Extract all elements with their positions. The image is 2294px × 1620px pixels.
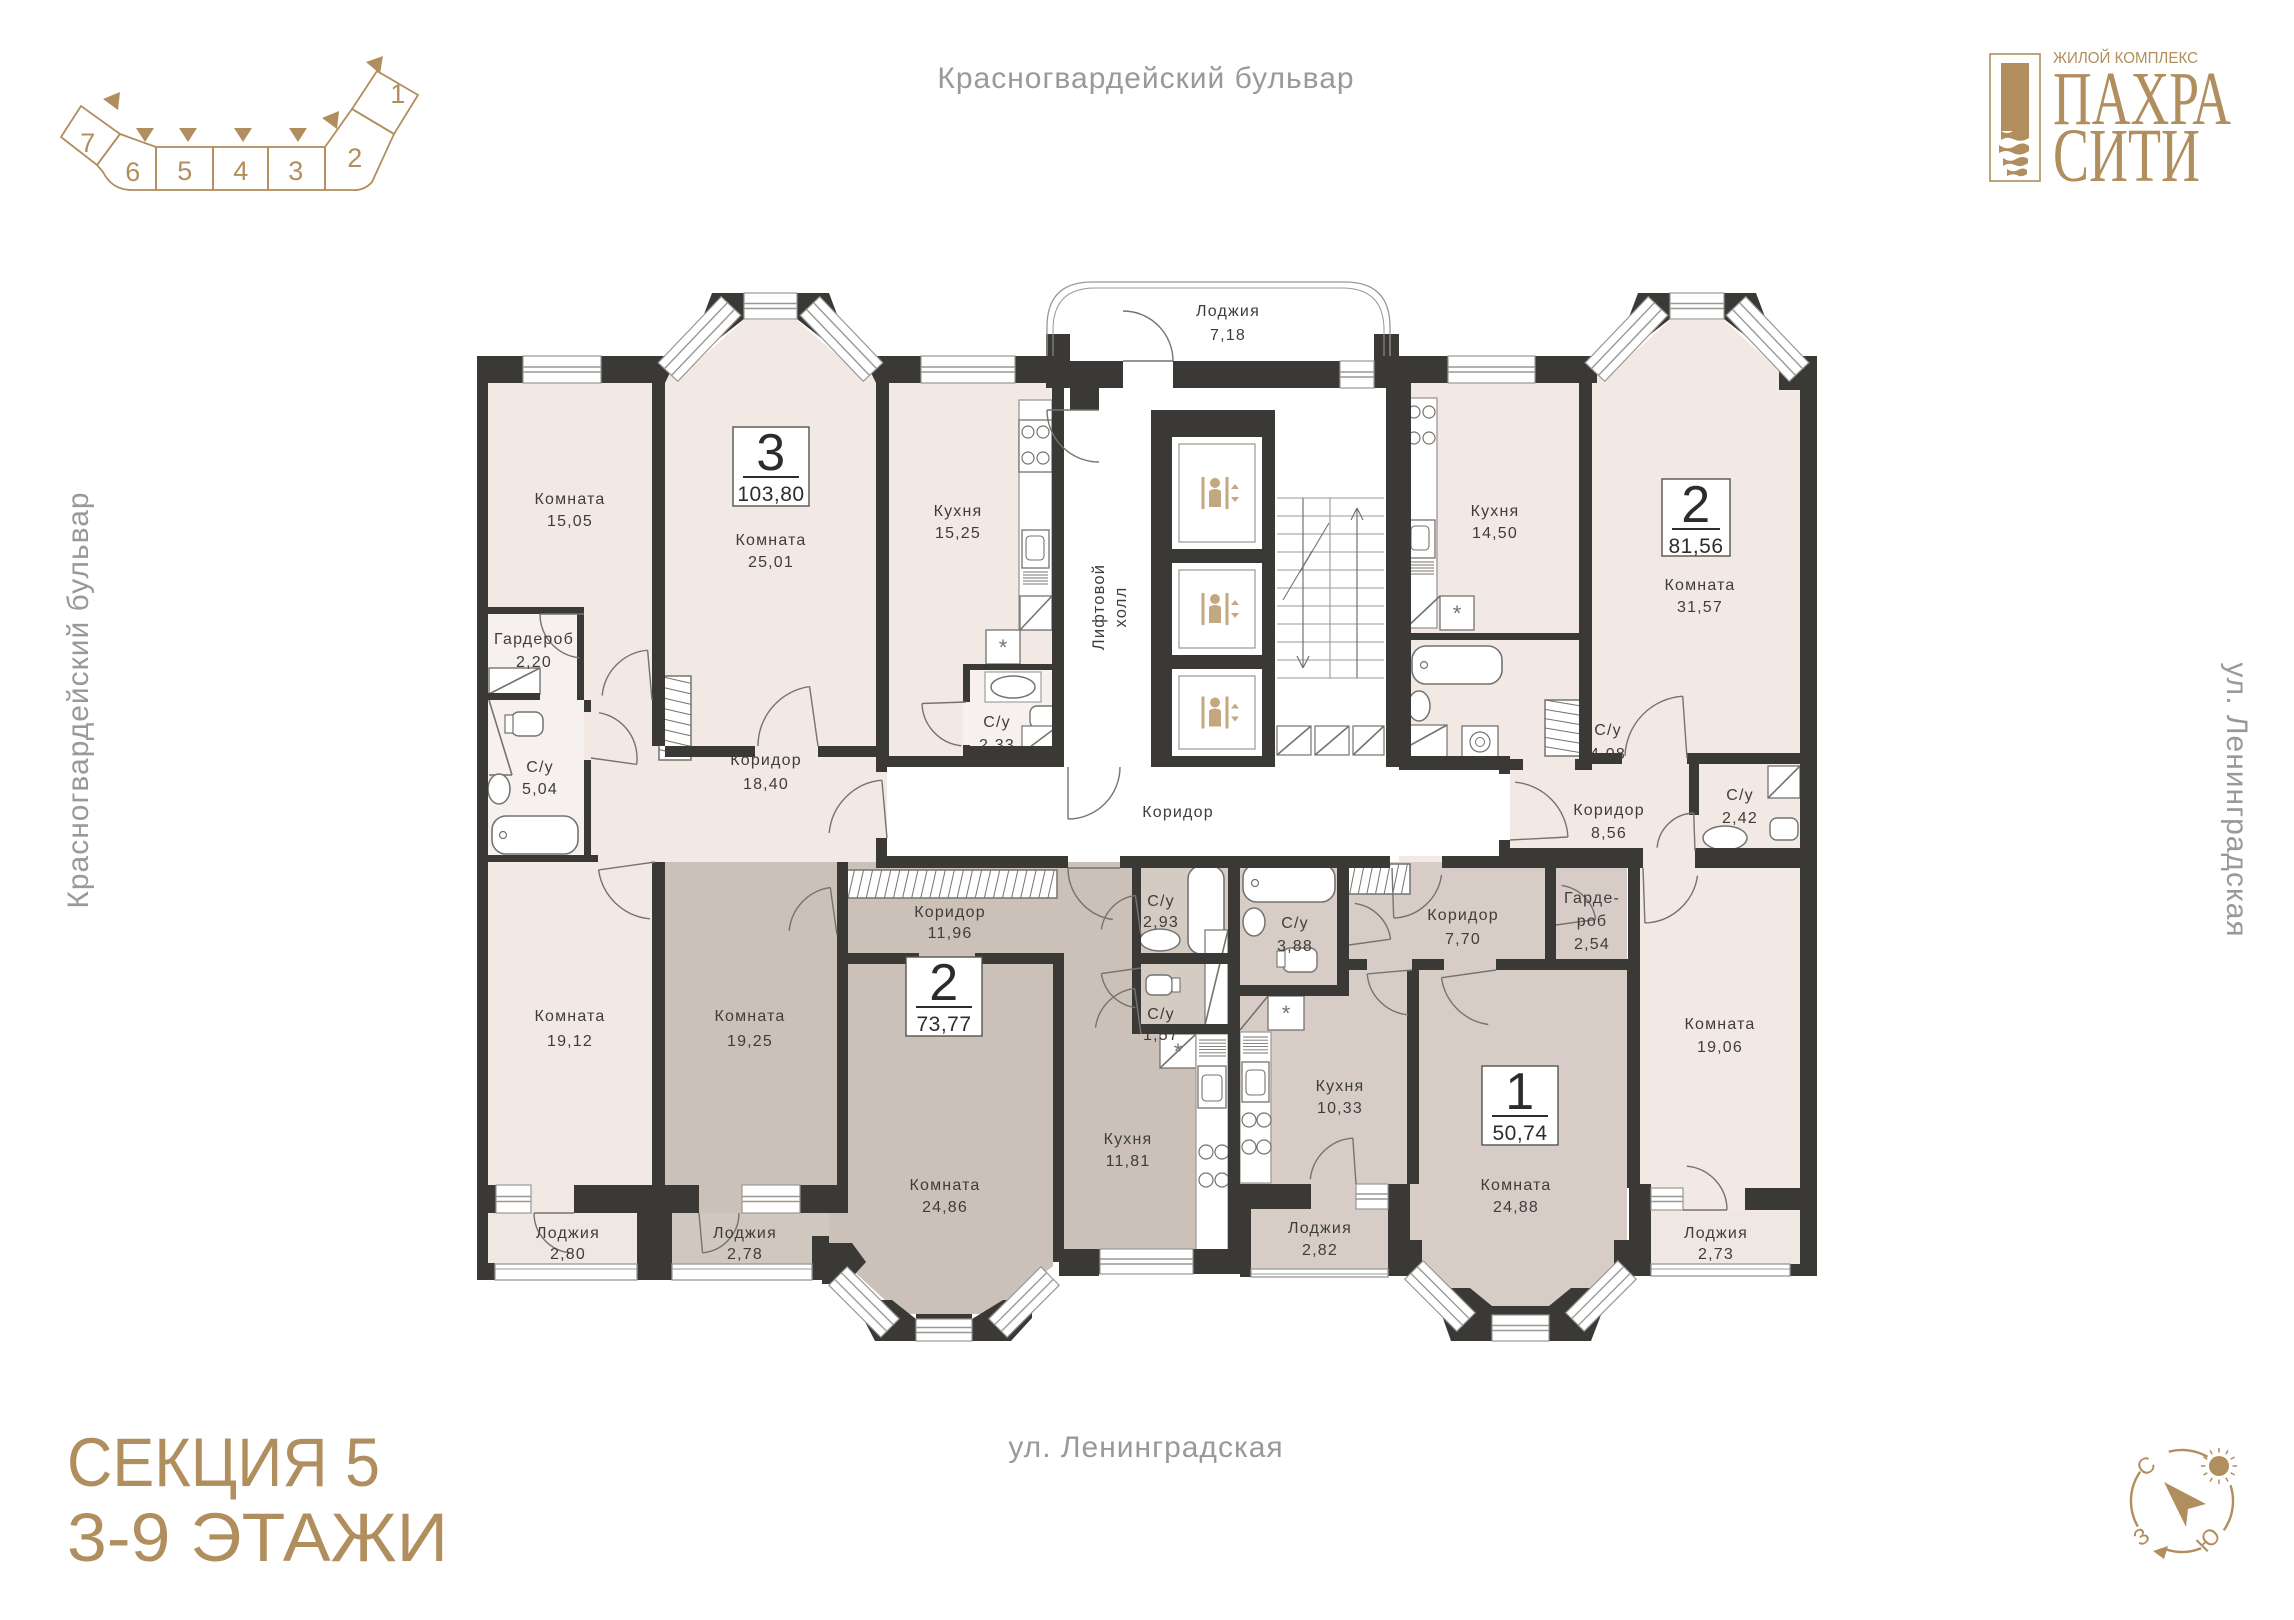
svg-text:103,80: 103,80 bbox=[737, 483, 804, 506]
svg-text:Лоджия: Лоджия bbox=[1196, 303, 1260, 320]
svg-text:14,50: 14,50 bbox=[1472, 525, 1518, 542]
svg-text:Комната: Комната bbox=[1684, 1016, 1755, 1033]
svg-text:С/у: С/у bbox=[1726, 787, 1754, 804]
svg-text:18,40: 18,40 bbox=[743, 776, 789, 793]
svg-text:СЕКЦИЯ 5: СЕКЦИЯ 5 bbox=[67, 1424, 380, 1501]
svg-text:Лифтовой: Лифтовой bbox=[1090, 564, 1108, 650]
svg-text:2,54: 2,54 bbox=[1574, 936, 1610, 953]
svg-text:6: 6 bbox=[125, 157, 141, 187]
svg-text:Комната: Комната bbox=[534, 1008, 605, 1025]
svg-text:роб: роб bbox=[1577, 913, 1608, 930]
svg-text:*: * bbox=[1453, 601, 1462, 626]
svg-text:Коридор: Коридор bbox=[1573, 802, 1645, 819]
svg-text:2,42: 2,42 bbox=[1722, 810, 1758, 827]
svg-text:Комната: Комната bbox=[534, 491, 605, 508]
svg-text:ул. Ленинградская: ул. Ленинградская bbox=[2220, 662, 2253, 937]
svg-text:24,86: 24,86 bbox=[922, 1199, 968, 1216]
svg-text:С/у: С/у bbox=[983, 714, 1011, 731]
svg-text:2,80: 2,80 bbox=[550, 1246, 586, 1263]
svg-text:Красногвардейский бульвар: Красногвардейский бульвар bbox=[937, 62, 1354, 95]
svg-text:10,33: 10,33 bbox=[1317, 1100, 1363, 1117]
svg-text:7: 7 bbox=[80, 128, 96, 158]
svg-text:31,57: 31,57 bbox=[1677, 599, 1723, 616]
svg-text:24,88: 24,88 bbox=[1493, 1199, 1539, 1216]
svg-text:*: * bbox=[1282, 1001, 1291, 1026]
svg-text:19,12: 19,12 bbox=[547, 1033, 593, 1050]
svg-text:Комната: Комната bbox=[714, 1008, 785, 1025]
svg-text:73,77: 73,77 bbox=[916, 1013, 971, 1036]
svg-text:7,18: 7,18 bbox=[1210, 327, 1246, 344]
svg-text:5,04: 5,04 bbox=[522, 781, 558, 798]
svg-text:Гардероб: Гардероб bbox=[494, 631, 574, 648]
svg-text:Комната: Комната bbox=[735, 532, 806, 549]
svg-text:Кухня: Кухня bbox=[1471, 503, 1520, 520]
svg-text:2: 2 bbox=[929, 954, 958, 1012]
svg-text:Лоджия: Лоджия bbox=[1684, 1225, 1748, 1242]
svg-text:25,01: 25,01 bbox=[748, 554, 794, 571]
svg-text:7,70: 7,70 bbox=[1445, 931, 1481, 948]
svg-text:3: 3 bbox=[756, 424, 785, 482]
svg-text:С/у: С/у bbox=[526, 759, 554, 776]
svg-text:Кухня: Кухня bbox=[934, 503, 983, 520]
svg-text:С/у: С/у bbox=[1147, 1006, 1175, 1023]
svg-text:1: 1 bbox=[1505, 1063, 1534, 1121]
svg-text:Красногвардейский бульвар: Красногвардейский бульвар bbox=[62, 491, 95, 908]
svg-text:2,73: 2,73 bbox=[1698, 1246, 1734, 1263]
svg-text:15,05: 15,05 bbox=[547, 513, 593, 530]
svg-text:4,08: 4,08 bbox=[1590, 746, 1626, 763]
svg-text:2: 2 bbox=[1681, 476, 1710, 534]
svg-text:19,25: 19,25 bbox=[727, 1033, 773, 1050]
svg-text:Комната: Комната bbox=[909, 1177, 980, 1194]
svg-text:С/у: С/у bbox=[1281, 915, 1309, 932]
svg-text:8,56: 8,56 bbox=[1591, 825, 1627, 842]
svg-text:81,56: 81,56 bbox=[1668, 535, 1723, 558]
svg-text:2,78: 2,78 bbox=[727, 1246, 763, 1263]
svg-text:1: 1 bbox=[390, 79, 406, 109]
svg-text:ул. Ленинградская: ул. Ленинградская bbox=[1008, 1431, 1283, 1464]
svg-text:2,20: 2,20 bbox=[516, 654, 552, 671]
svg-text:Коридор: Коридор bbox=[1142, 804, 1214, 821]
svg-text:3,88: 3,88 bbox=[1277, 938, 1313, 955]
svg-text:С/у: С/у bbox=[1594, 722, 1622, 739]
svg-text:Коридор: Коридор bbox=[730, 752, 802, 769]
svg-text:4: 4 bbox=[233, 156, 249, 186]
svg-text:холл: холл bbox=[1112, 587, 1130, 628]
svg-text:2,93: 2,93 bbox=[1143, 914, 1179, 931]
svg-text:СИТИ: СИТИ bbox=[2053, 114, 2200, 198]
svg-text:2: 2 bbox=[347, 143, 363, 173]
svg-text:Лоджия: Лоджия bbox=[536, 1225, 600, 1242]
svg-text:5: 5 bbox=[177, 156, 193, 186]
svg-text:Коридор: Коридор bbox=[1427, 907, 1499, 924]
svg-text:Кухня: Кухня bbox=[1316, 1078, 1365, 1095]
svg-text:2,33: 2,33 bbox=[979, 737, 1015, 754]
svg-text:2,82: 2,82 bbox=[1302, 1242, 1338, 1259]
svg-text:3: 3 bbox=[288, 156, 304, 186]
svg-text:Гарде-: Гарде- bbox=[1564, 890, 1620, 907]
svg-text:Лоджия: Лоджия bbox=[713, 1225, 777, 1242]
svg-text:Коридор: Коридор bbox=[914, 904, 986, 921]
svg-text:11,96: 11,96 bbox=[928, 925, 973, 942]
svg-text:3-9 ЭТАЖИ: 3-9 ЭТАЖИ bbox=[67, 1499, 448, 1576]
svg-text:Кухня: Кухня bbox=[1104, 1131, 1153, 1148]
svg-text:19,06: 19,06 bbox=[1697, 1039, 1743, 1056]
svg-text:С/у: С/у bbox=[1147, 893, 1175, 910]
svg-text:50,74: 50,74 bbox=[1492, 1122, 1547, 1145]
svg-text:11,81: 11,81 bbox=[1106, 1153, 1151, 1170]
svg-text:Лоджия: Лоджия bbox=[1288, 1220, 1352, 1237]
svg-text:15,25: 15,25 bbox=[935, 525, 981, 542]
svg-text:Комната: Комната bbox=[1664, 577, 1735, 594]
svg-text:Комната: Комната bbox=[1480, 1177, 1551, 1194]
svg-text:*: * bbox=[999, 635, 1008, 660]
svg-text:1,57: 1,57 bbox=[1143, 1027, 1179, 1044]
